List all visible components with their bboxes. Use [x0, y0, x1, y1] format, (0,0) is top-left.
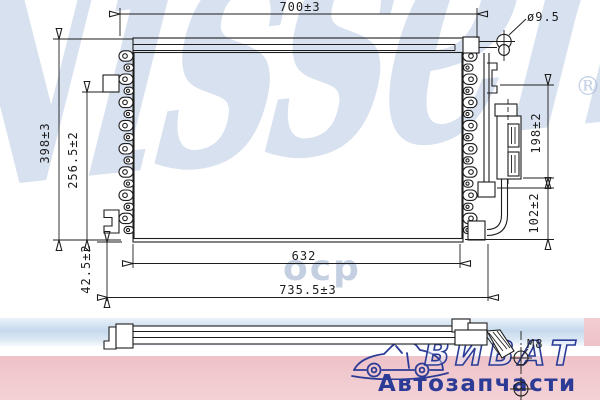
dim-right-upper-height-label: 198±2 — [529, 112, 543, 153]
side-profile-body — [133, 326, 455, 344]
tube-end-tab — [464, 157, 474, 164]
dim-port-diameter: ø9.5 — [509, 10, 560, 35]
dim-left-partial-height: 256.5±2 — [66, 92, 103, 240]
tube-end-tab — [124, 110, 134, 117]
tube-end-tab — [124, 87, 134, 94]
tube-end-tab — [464, 134, 474, 141]
thread-size-label: M8 — [527, 337, 543, 351]
tube-end-tab — [119, 120, 133, 130]
tube-end-tab — [124, 180, 134, 187]
tube-end-tab — [119, 213, 133, 223]
tube-end-tab — [464, 203, 474, 210]
tube-end-tab — [119, 74, 133, 84]
dim-bottom-bracket-offset-label: 42.5±2 — [79, 244, 93, 293]
tube-end-tab — [464, 180, 474, 187]
dim-right-lower-height-label: 102±2 — [527, 192, 541, 233]
tube-end-tab — [463, 190, 477, 200]
tube-end-tab — [463, 74, 477, 84]
right-pipe — [478, 53, 497, 197]
tube-end-tab — [463, 167, 477, 177]
tube-end-tab — [124, 134, 134, 141]
tube-end-tab — [119, 167, 133, 177]
dim-bottom-bracket-offset: 42.5±2 — [79, 242, 122, 301]
side-left-bracket — [104, 327, 116, 349]
dim-overall-height-label: 398±3 — [38, 122, 52, 163]
dim-core-width-label: 632 — [292, 249, 317, 263]
condenser-core — [133, 38, 463, 242]
tube-end-tab — [464, 87, 474, 94]
tube-end-tab — [119, 144, 133, 154]
tube-end-tab — [464, 110, 474, 117]
dim-overall-width-label: 735.5±3 — [279, 283, 337, 297]
tube-end-tab — [463, 120, 477, 130]
tube-end-tab — [124, 203, 134, 210]
tube-end-tab — [119, 97, 133, 107]
side-elbow-fitting — [487, 330, 514, 358]
tube-end-tab — [464, 64, 474, 71]
mounting-bolt-symbol — [510, 378, 532, 400]
upper-left-bracket — [103, 75, 119, 92]
tube-end-tab — [124, 157, 134, 164]
tube-end-tab — [124, 226, 134, 233]
tube-end-tab — [124, 64, 134, 71]
side-view: M8 — [104, 319, 543, 400]
dim-core-width: 632 — [133, 244, 460, 268]
dim-left-partial-height-label: 256.5±2 — [66, 131, 80, 189]
right-header-tabs — [463, 51, 477, 234]
tube-end-tab — [463, 97, 477, 107]
tube-end-tab — [119, 51, 133, 61]
technical-drawing: ø9.5 — [0, 0, 600, 400]
dim-top-width-label: 700±3 — [279, 0, 320, 14]
front-view: ø9.5 — [38, 0, 560, 301]
receiver-drier — [495, 99, 521, 185]
dim-top-width: 700±3 — [120, 0, 477, 38]
condenser-drawing-page: Nissens ® оср ВИВАТ Автозапчасти — [0, 0, 600, 400]
dim-port-diameter-label: ø9.5 — [527, 10, 560, 24]
left-header-tabs — [119, 51, 134, 234]
tube-end-tab — [119, 190, 133, 200]
lower-left-bracket — [104, 210, 119, 233]
tube-end-tab — [463, 144, 477, 154]
